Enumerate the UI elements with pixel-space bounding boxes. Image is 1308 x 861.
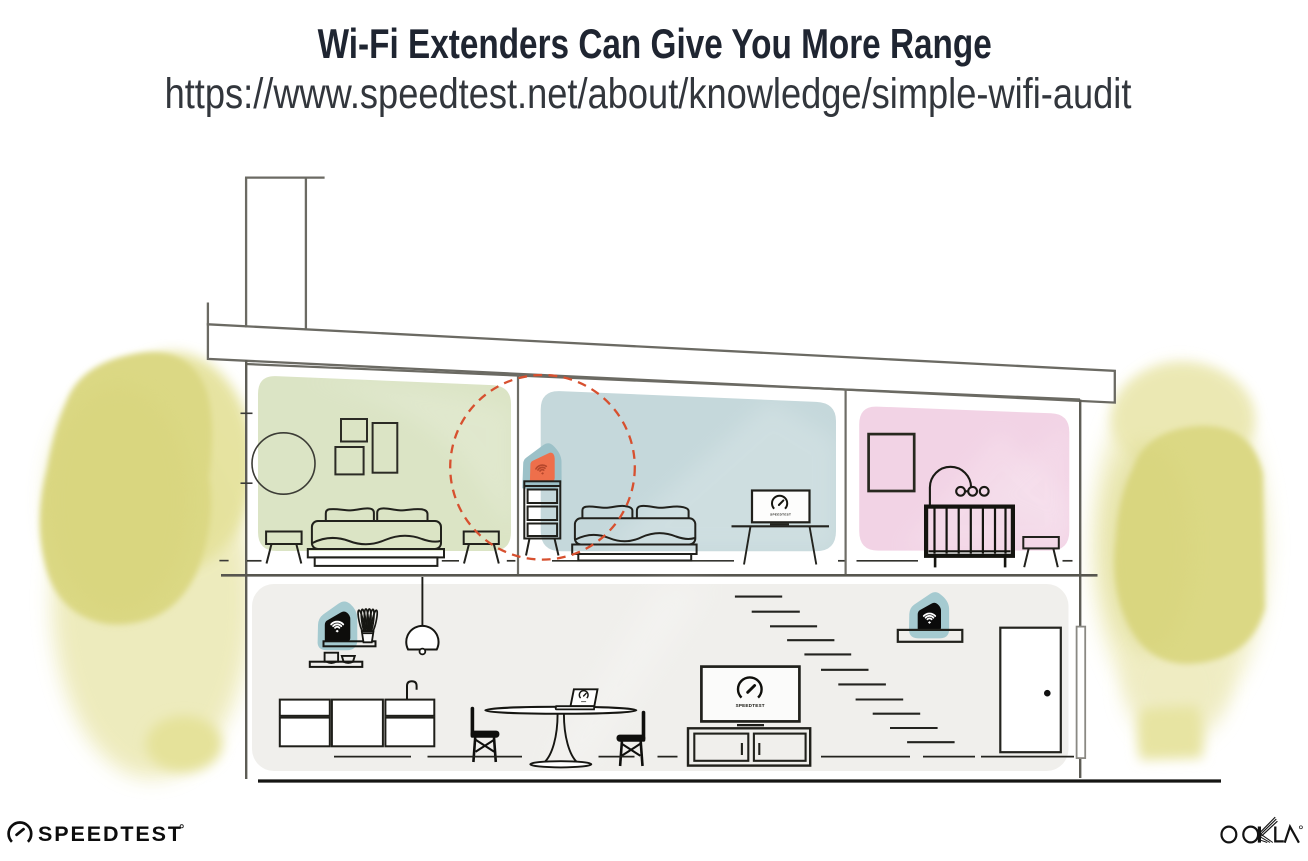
svg-text:https://www.speedtest.net/abou: https://www.speedtest.net/about/knowledg… xyxy=(165,70,1132,117)
svg-text:SPEEDTEST: SPEEDTEST xyxy=(770,513,791,517)
svg-text:SPEEDTEST: SPEEDTEST xyxy=(736,703,765,708)
svg-text:SPEEDTEST: SPEEDTEST xyxy=(38,822,183,846)
svg-text:Wi-Fi Extenders Can Give You M: Wi-Fi Extenders Can Give You More Range xyxy=(318,21,992,67)
